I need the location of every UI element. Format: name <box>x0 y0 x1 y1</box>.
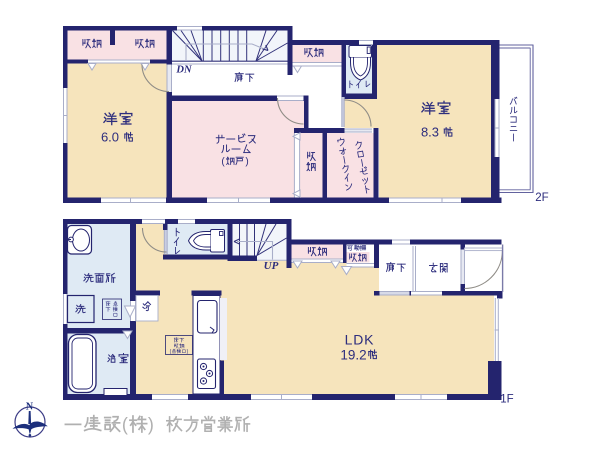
svg-text:8.3: 8.3 <box>421 125 439 140</box>
svg-text:19.2: 19.2 <box>340 348 366 363</box>
svg-text:6.0: 6.0 <box>101 130 119 145</box>
svg-text:N: N <box>26 402 34 413</box>
svg-text:): ) <box>245 157 248 168</box>
svg-text:(: ( <box>122 415 128 435</box>
svg-text:UP: UP <box>264 260 279 272</box>
svg-text:DN: DN <box>175 65 192 76</box>
svg-text:): ) <box>148 415 154 435</box>
svg-text:1F: 1F <box>500 394 513 406</box>
svg-text:2F: 2F <box>535 192 548 204</box>
svg-text:LDK: LDK <box>345 332 375 348</box>
